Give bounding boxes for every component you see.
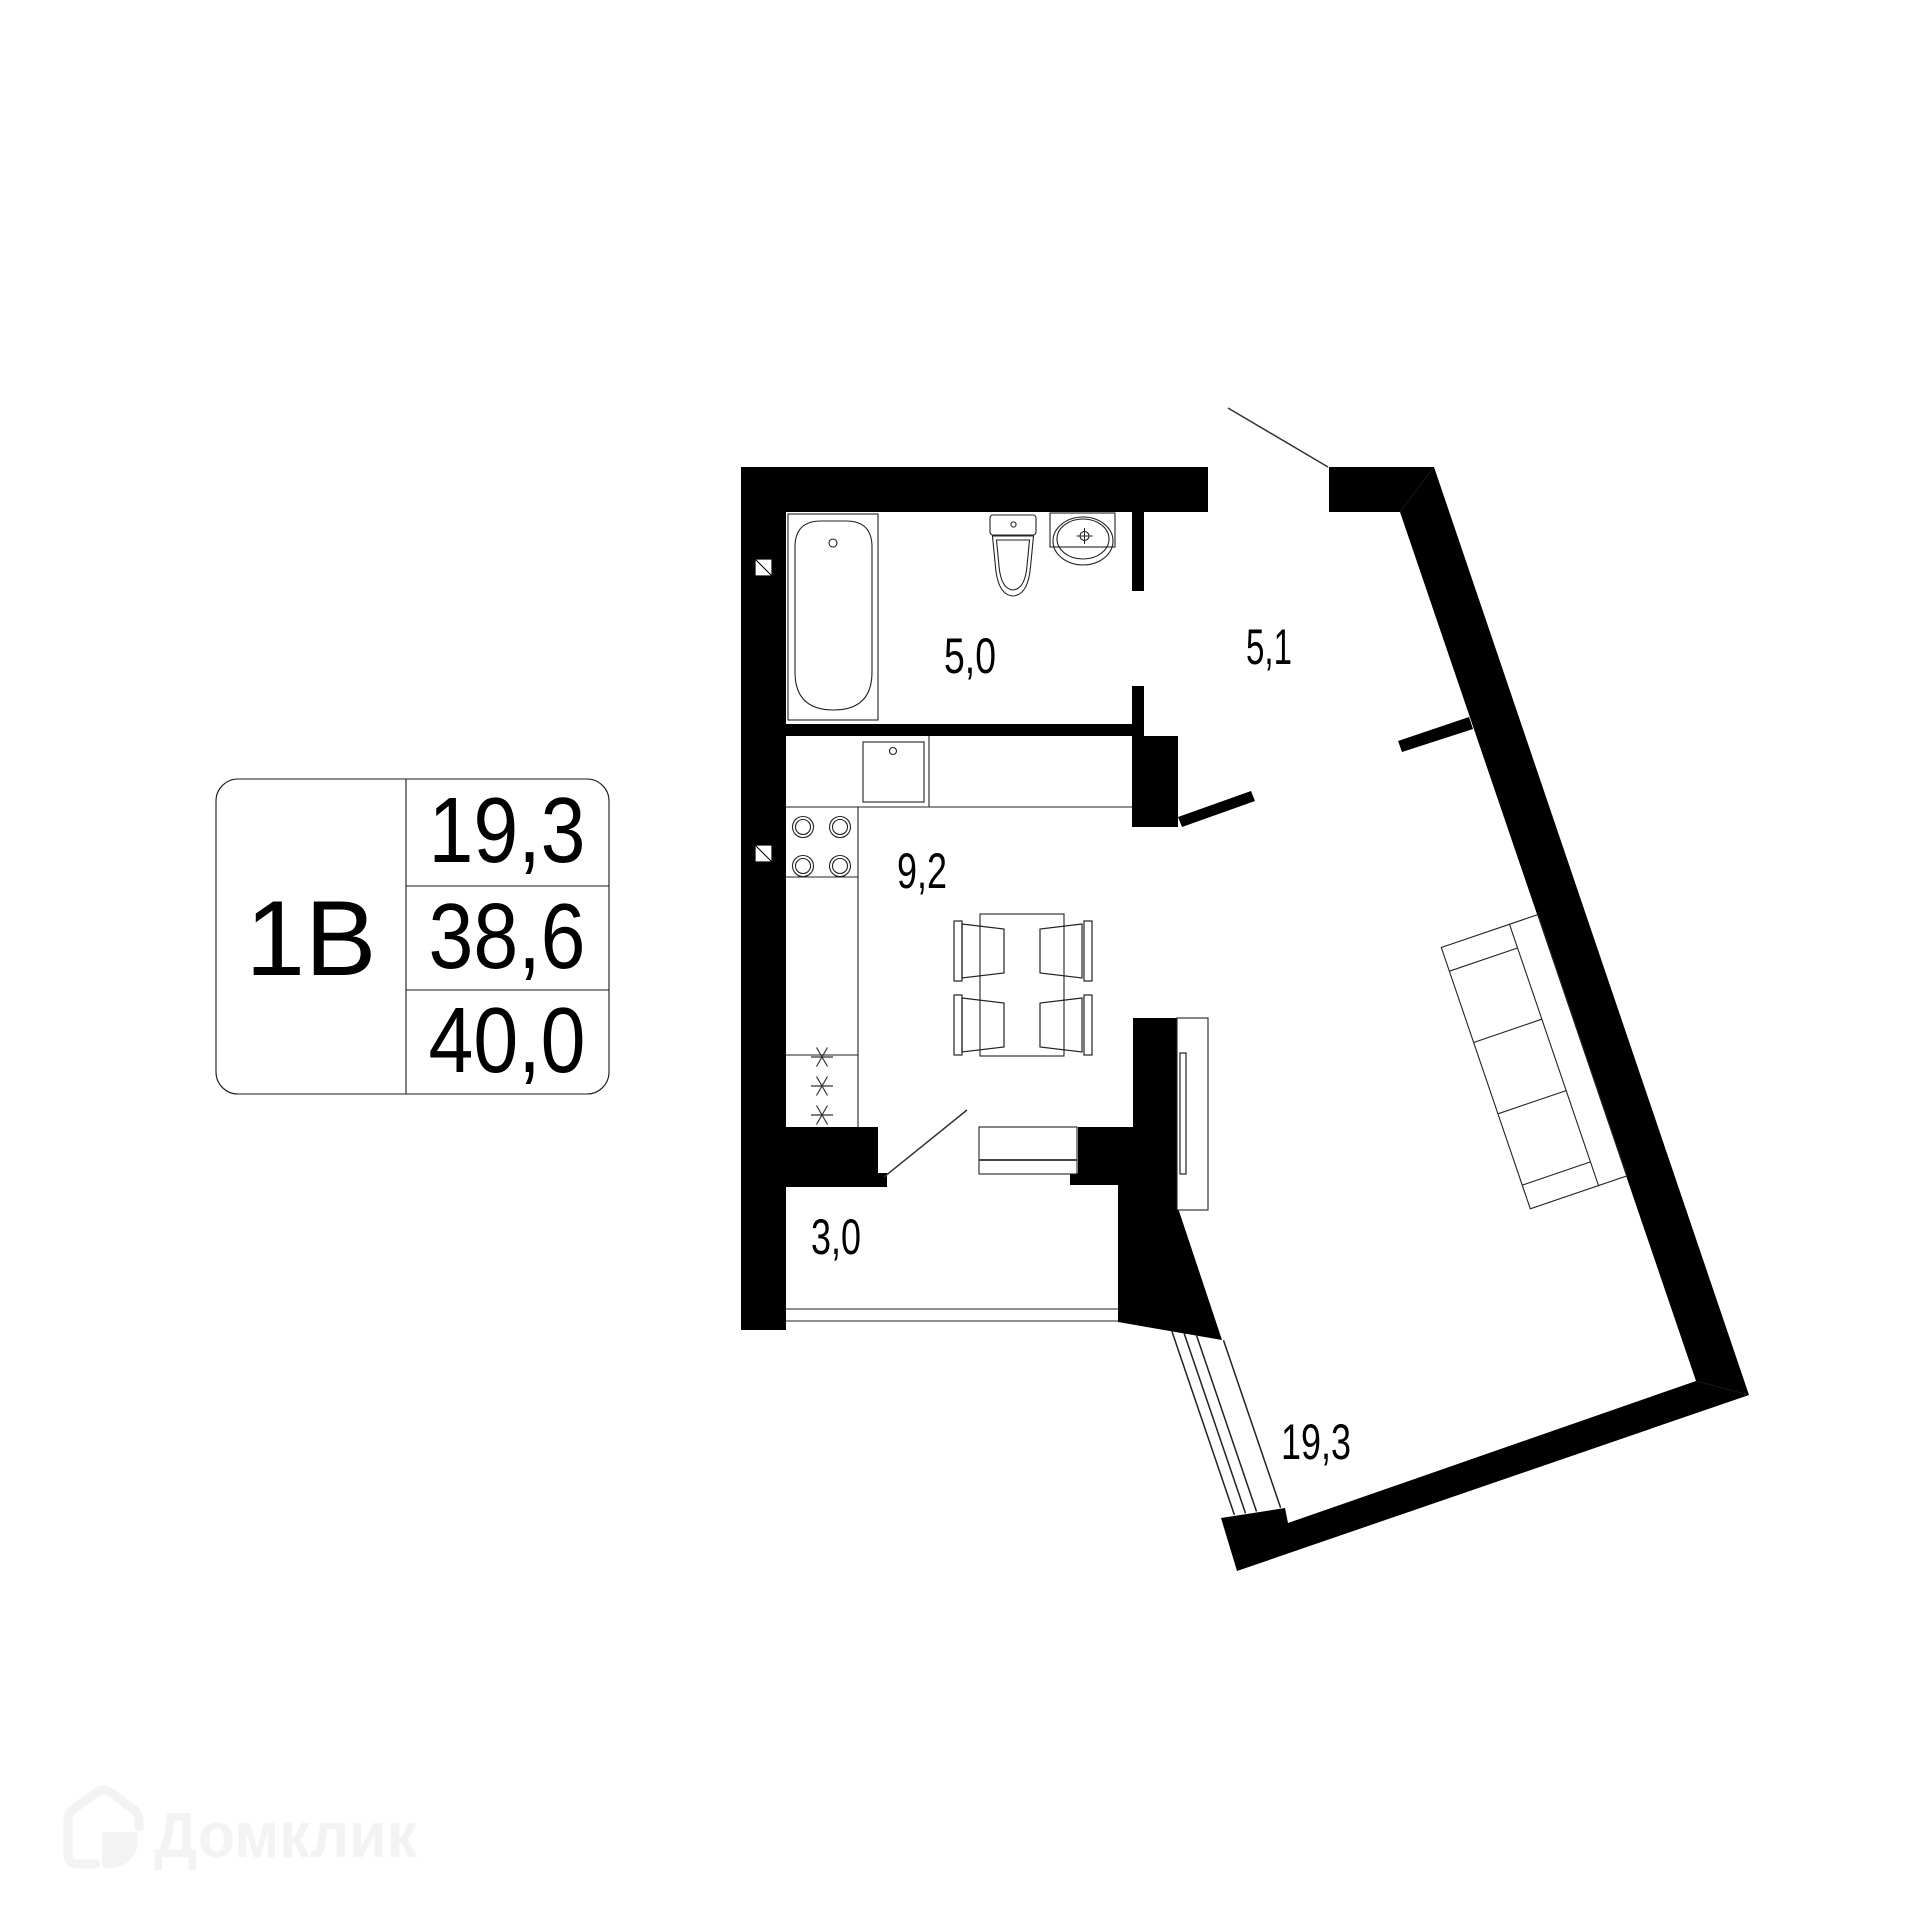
svg-text:3,0: 3,0 — [811, 1209, 861, 1265]
svg-text:Домклик: Домклик — [154, 1799, 418, 1871]
svg-text:5,0: 5,0 — [944, 628, 996, 684]
svg-text:19,3: 19,3 — [429, 778, 586, 882]
svg-text:40,0: 40,0 — [429, 988, 586, 1092]
svg-text:1В: 1В — [246, 878, 377, 998]
svg-text:38,6: 38,6 — [429, 884, 586, 988]
svg-text:5,1: 5,1 — [1246, 619, 1292, 675]
svg-text:19,3: 19,3 — [1281, 1414, 1351, 1470]
svg-text:9,2: 9,2 — [897, 843, 947, 899]
